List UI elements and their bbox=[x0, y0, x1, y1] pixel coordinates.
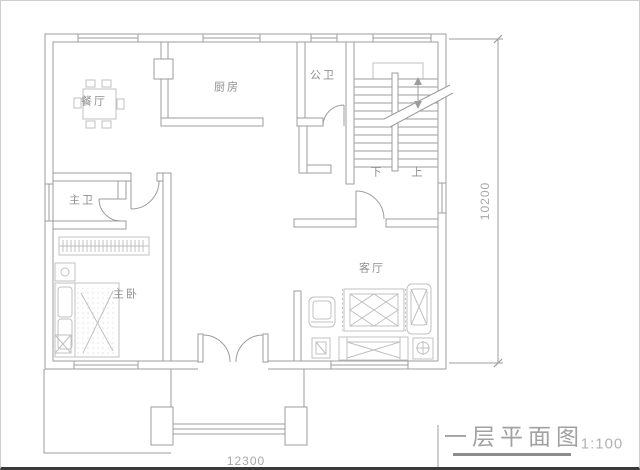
door-icon-bedroom-corridor bbox=[131, 181, 159, 209]
dimension-line-right bbox=[449, 35, 503, 367]
stairs-up-label: 上 bbox=[412, 168, 423, 179]
drawing-title: 一层平面图 bbox=[444, 426, 584, 449]
window-icon bbox=[45, 184, 53, 221]
window-icon bbox=[311, 34, 337, 42]
wardrobe-icon bbox=[59, 237, 149, 255]
sofa-icon bbox=[339, 337, 408, 360]
armchair-icon bbox=[309, 297, 335, 327]
side-table-icon bbox=[413, 338, 433, 359]
double-entry-door-icon bbox=[198, 334, 268, 370]
room-label-dining: 餐厅 bbox=[81, 97, 107, 108]
porch-steps bbox=[151, 369, 307, 445]
window-icon bbox=[203, 34, 260, 42]
door-icon-stair-hall bbox=[356, 191, 384, 219]
window-icon bbox=[74, 361, 138, 369]
window-icon bbox=[331, 361, 408, 369]
door-icon-master-bath bbox=[99, 199, 121, 221]
floor-plan-drawing: 餐厅 厨房 公卫 主卫 主卧 客厅 下 上 12300 10200 一层平面图 … bbox=[0, 0, 640, 470]
window-icon bbox=[373, 34, 431, 42]
bedside-box-icon bbox=[55, 335, 71, 353]
rug-icon bbox=[343, 289, 406, 331]
window-icon bbox=[438, 183, 446, 213]
nightstand-icon bbox=[55, 263, 75, 281]
room-label-master-bedroom: 主卧 bbox=[113, 290, 139, 301]
door-icon-public-bath bbox=[323, 105, 344, 126]
room-label-kitchen: 厨房 bbox=[214, 83, 240, 94]
dimension-bottom: 12300 bbox=[227, 455, 265, 467]
side-table-icon bbox=[312, 338, 330, 358]
room-label-public-bath: 公卫 bbox=[310, 71, 336, 82]
drawing-scale: 1:100 bbox=[581, 437, 624, 452]
stairs-down-label: 下 bbox=[371, 168, 382, 179]
title-underline bbox=[453, 453, 571, 456]
room-label-living: 客厅 bbox=[359, 264, 385, 275]
dimension-right: 10200 bbox=[479, 182, 491, 220]
lounge-chair-icon bbox=[407, 284, 431, 334]
window-icon bbox=[78, 34, 138, 42]
terrace-outline bbox=[44, 369, 171, 453]
room-label-master-bath: 主卫 bbox=[69, 196, 95, 207]
